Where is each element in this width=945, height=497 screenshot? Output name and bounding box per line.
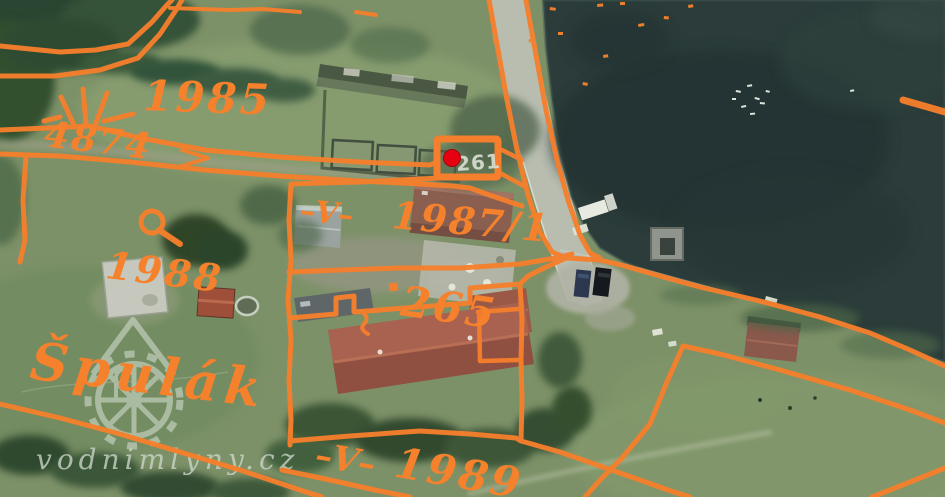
chimney — [468, 336, 473, 341]
field-speck — [813, 396, 817, 400]
parked-car — [592, 267, 611, 297]
car-body — [592, 267, 611, 297]
parking-gravel — [585, 305, 635, 331]
parcel-label-1985: 1985 — [142, 71, 273, 124]
round-structure — [236, 297, 258, 315]
tree-blob — [552, 386, 592, 434]
parcel-label-261: 261 — [455, 149, 501, 176]
tree-blob — [538, 332, 582, 388]
meadow-symbol-1987: –V– — [298, 193, 355, 233]
ruins-cell — [332, 140, 373, 170]
ruins-cell — [377, 145, 416, 174]
aerial-map: vodnimlyny.cz — [0, 0, 945, 497]
pad-stain — [142, 294, 158, 306]
field-speck — [788, 406, 792, 410]
building-dot-265 — [388, 282, 398, 291]
parked-car — [574, 269, 592, 297]
tree-blob — [350, 27, 430, 63]
sluice-opening — [660, 238, 675, 255]
field-speck — [758, 398, 762, 402]
parcel-west-line — [288, 184, 291, 445]
shore-vegetation — [740, 304, 860, 332]
chimney — [378, 350, 383, 355]
mill-location-marker[interactable] — [444, 150, 461, 167]
water-shading — [670, 170, 910, 290]
car-body — [574, 269, 592, 297]
map-canvas[interactable]: vodnimlyny.cz — [0, 0, 945, 497]
water-shading — [570, 10, 670, 70]
